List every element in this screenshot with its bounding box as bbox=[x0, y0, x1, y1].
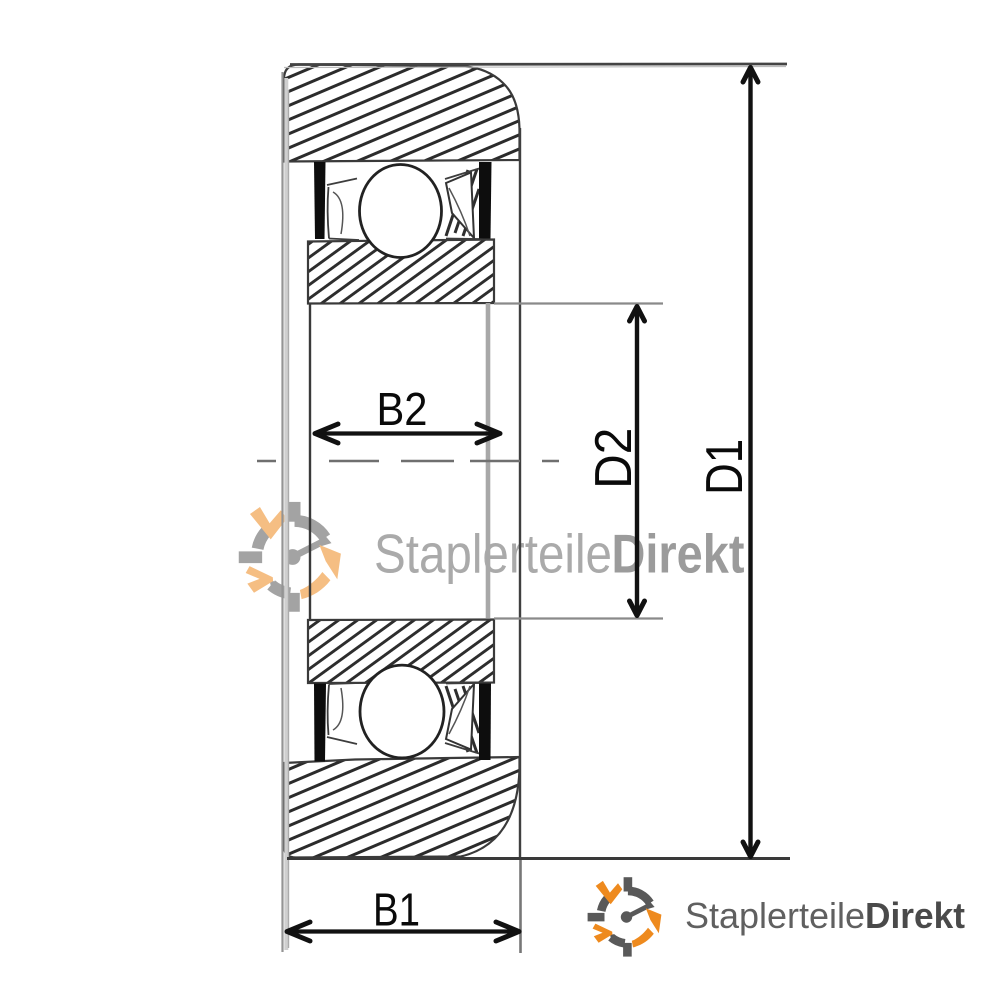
svg-text:Staplerteile: Staplerteile bbox=[685, 895, 865, 936]
svg-text:Direkt: Direkt bbox=[865, 895, 965, 936]
svg-text:D2: D2 bbox=[585, 428, 643, 489]
svg-text:Staplerteile: Staplerteile bbox=[374, 523, 612, 585]
svg-text:B2: B2 bbox=[377, 383, 428, 435]
svg-text:B1: B1 bbox=[373, 884, 420, 936]
svg-text:Direkt: Direkt bbox=[612, 523, 745, 585]
svg-text:D1: D1 bbox=[696, 439, 754, 495]
